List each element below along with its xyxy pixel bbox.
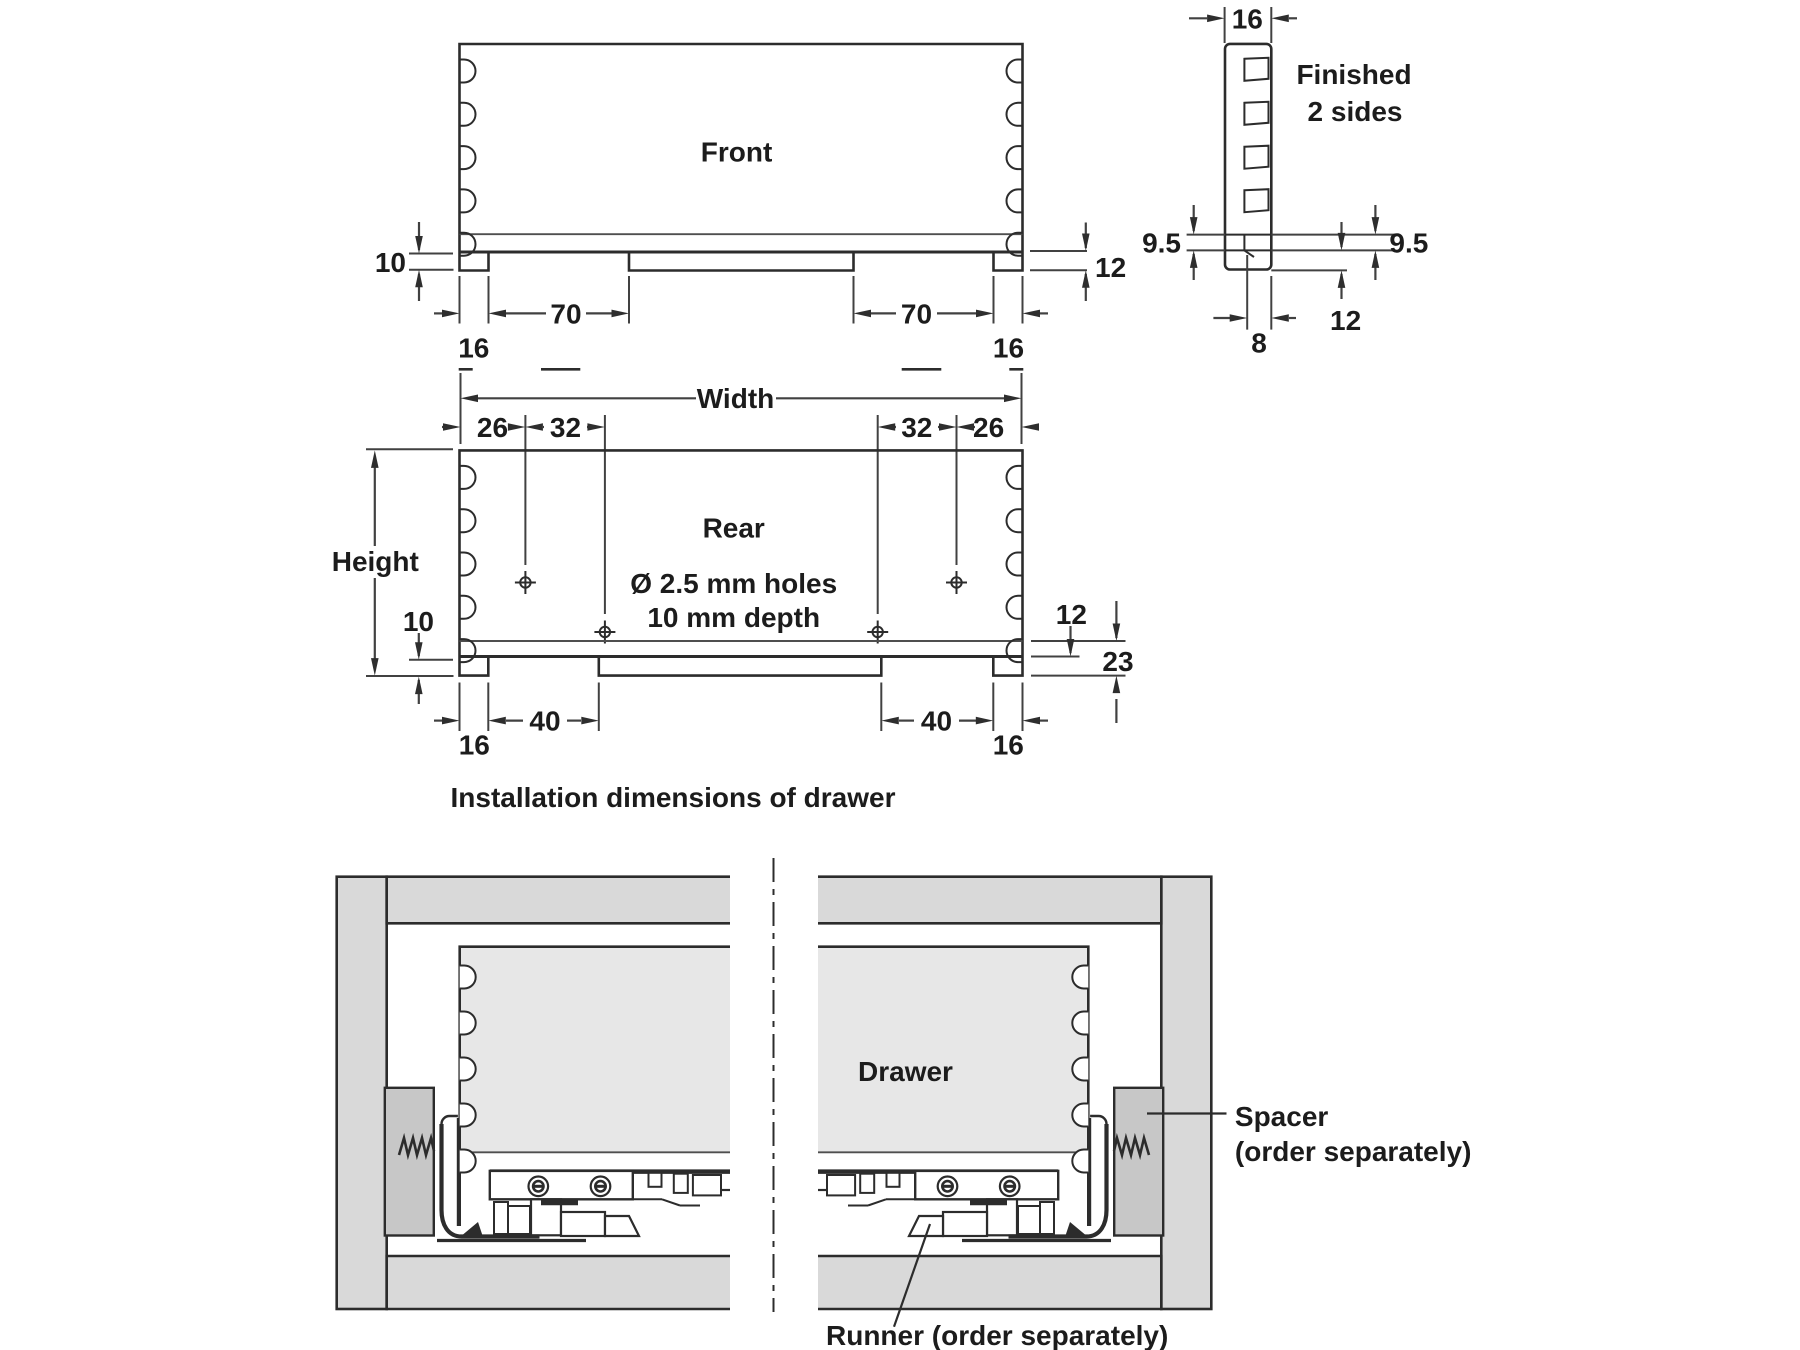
svg-text:40: 40 xyxy=(529,706,560,737)
svg-text:8: 8 xyxy=(1251,328,1267,359)
svg-text:70: 70 xyxy=(550,299,581,330)
svg-text:9.5: 9.5 xyxy=(1142,227,1181,258)
svg-text:23: 23 xyxy=(1102,646,1133,677)
svg-text:Runner (order separately): Runner (order separately) xyxy=(826,1320,1168,1350)
svg-text:Rear: Rear xyxy=(703,513,765,544)
svg-text:Width: Width xyxy=(697,383,775,414)
svg-text:Front: Front xyxy=(701,137,773,168)
svg-text:16: 16 xyxy=(993,730,1024,761)
svg-text:10: 10 xyxy=(403,606,434,637)
svg-text:32: 32 xyxy=(550,412,581,443)
svg-text:12: 12 xyxy=(1056,599,1087,630)
svg-text:Installation dimensions of dra: Installation dimensions of drawer xyxy=(451,782,896,813)
svg-text:16: 16 xyxy=(458,333,489,364)
svg-text:2 sides: 2 sides xyxy=(1308,96,1403,127)
svg-text:Height: Height xyxy=(332,546,419,577)
svg-text:Spacer: Spacer xyxy=(1235,1101,1328,1132)
svg-text:Ø 2.5 mm holes: Ø 2.5 mm holes xyxy=(630,568,837,599)
svg-text:16: 16 xyxy=(1232,3,1263,34)
svg-text:9.5: 9.5 xyxy=(1389,227,1428,258)
svg-text:10: 10 xyxy=(375,247,406,278)
svg-text:12: 12 xyxy=(1095,252,1126,283)
svg-text:10 mm depth: 10 mm depth xyxy=(647,602,820,633)
svg-text:16: 16 xyxy=(459,730,490,761)
svg-text:Finished: Finished xyxy=(1296,59,1411,90)
svg-text:26: 26 xyxy=(477,412,508,443)
svg-text:70: 70 xyxy=(901,299,932,330)
svg-text:26: 26 xyxy=(973,412,1004,443)
svg-text:40: 40 xyxy=(921,706,952,737)
svg-text:Drawer: Drawer xyxy=(858,1056,953,1087)
svg-text:32: 32 xyxy=(901,412,932,443)
svg-text:(order separately): (order separately) xyxy=(1235,1136,1472,1167)
svg-text:12: 12 xyxy=(1330,305,1361,336)
svg-text:16: 16 xyxy=(993,333,1024,364)
